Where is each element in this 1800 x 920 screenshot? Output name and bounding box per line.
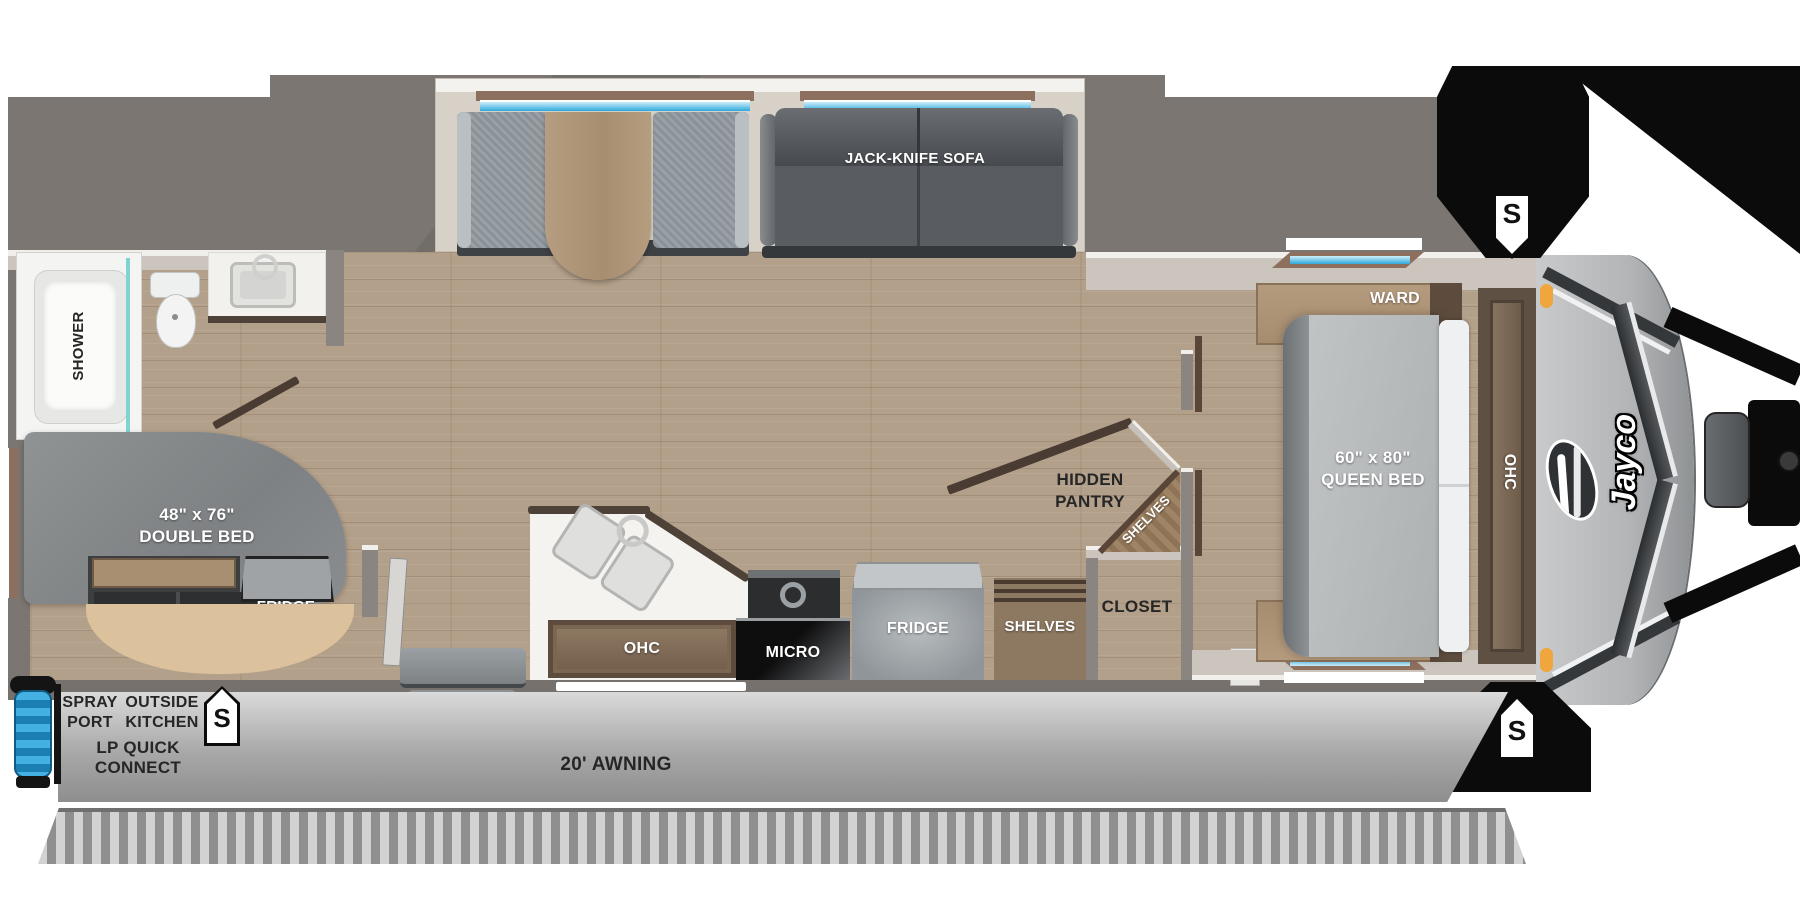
bedroom-wall-lower — [1181, 468, 1193, 680]
awning-roll-tube — [38, 808, 1526, 864]
bedroom-wall-upper — [1181, 350, 1193, 410]
stab-jack-side-label: S — [207, 703, 237, 734]
ward-top-label: WARD — [1345, 290, 1445, 308]
bench-armrest — [735, 112, 749, 248]
door-trim-lower — [1195, 470, 1202, 556]
toilet-flush-dot — [172, 314, 178, 320]
rear-window-sill — [9, 448, 18, 598]
closet-left-wall — [1086, 558, 1098, 680]
underbed-shelf — [92, 558, 236, 588]
stab-jack-top-label: S — [1496, 198, 1528, 230]
entry-step-1 — [400, 648, 526, 688]
queen-size-label: 60" x 80" — [1303, 448, 1443, 468]
outside-kitchen-label-1: OUTSIDE — [122, 694, 202, 712]
shelves-cabinet-label: SHELVES — [990, 618, 1090, 635]
kitchen-fridge-label: FRIDGE — [852, 620, 984, 638]
hidden-pantry-label-1: HIDDEN — [1040, 470, 1140, 490]
lp-quick-connect-label-2: CONNECT — [78, 758, 198, 778]
dinette-window-glass — [480, 100, 750, 111]
bench-armrest — [457, 112, 471, 248]
hitch-ball — [1778, 450, 1800, 472]
sofa-label: JACK-KNIFE SOFA — [790, 150, 1040, 167]
spray-port-label-2: PORT — [60, 714, 120, 732]
closet-label: CLOSET — [1082, 597, 1192, 617]
marker-light-bottom — [1540, 648, 1553, 672]
dinette-bench-right — [653, 112, 749, 248]
kitchen-fridge-top — [852, 562, 984, 590]
spray-port-label-1: SPRAY — [60, 694, 120, 712]
spray-port-base — [16, 776, 50, 788]
queen-type-label: QUEEN BED — [1303, 470, 1443, 490]
spray-port-hose-icon — [14, 690, 52, 778]
floorplan-scene: JACK-KNIFE SOFA SHOWER 48" x 76" DOUBLE … — [0, 0, 1800, 920]
shower-glass — [126, 258, 130, 434]
lp-quick-connect-label-1: LP QUICK — [78, 738, 198, 758]
propane-tank-cover — [1704, 412, 1750, 508]
range-burner — [780, 582, 806, 608]
bath-counter-edge — [208, 316, 326, 323]
double-bed-type-label: DOUBLE BED — [97, 527, 297, 547]
bedroom-top-window-highlight — [1286, 238, 1422, 250]
stab-jack-bottom-label: S — [1501, 715, 1533, 747]
sofa-base-shadow — [762, 246, 1076, 258]
jayco-logo-text: Jayco — [1605, 387, 1641, 537]
bedroom-ohc-label: OHC — [1498, 436, 1518, 508]
door-trim-upper — [1195, 336, 1202, 412]
bedroom-top-window-glass — [1290, 256, 1410, 264]
bed-wall-stub — [362, 545, 378, 617]
queen-pillow-seam — [1439, 484, 1469, 487]
sofa-armrest-right — [1061, 114, 1078, 246]
bath-wall-stub — [326, 250, 344, 346]
awning-label: 20' AWNING — [516, 754, 716, 776]
kitchen-white-trim — [556, 682, 746, 691]
shelves-cabinet-stripes — [994, 580, 1086, 602]
toilet-bowl — [156, 294, 196, 348]
marker-light-top — [1540, 284, 1553, 308]
bird-feather-2 — [1574, 445, 1581, 517]
sofa-seat-seam — [917, 166, 920, 246]
hidden-pantry-label-2: PANTRY — [1040, 492, 1140, 512]
dinette-bench-left — [457, 112, 553, 248]
bedroom-bottom-window-highlight — [1284, 672, 1424, 683]
double-bed-size-label: 48" x 76" — [97, 505, 297, 525]
awning-band — [58, 692, 1508, 802]
black-wedge-top-right — [1560, 66, 1800, 254]
micro-label: MICRO — [736, 644, 850, 662]
dinette-table — [545, 112, 651, 280]
underbed-fridge-panel — [240, 556, 334, 602]
shower-label: SHOWER — [70, 274, 90, 418]
outside-kitchen-label-2: KITCHEN — [122, 714, 202, 732]
kitchen-ohc-label: OHC — [548, 640, 736, 658]
